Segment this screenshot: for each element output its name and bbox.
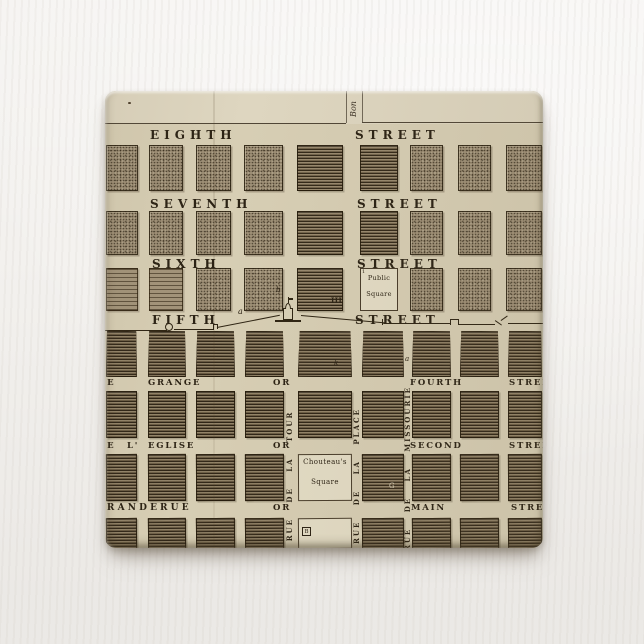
fortification-line	[459, 324, 495, 325]
city-block	[410, 268, 443, 311]
street-label-main-french2: RUE	[160, 503, 192, 513]
street-label-seventh: SEVENTH	[150, 197, 253, 211]
city-block	[458, 211, 491, 255]
public-square-line1: Public	[360, 274, 398, 282]
city-block	[196, 331, 235, 377]
city-block	[412, 454, 451, 501]
annotation-letter-a: a	[238, 307, 243, 316]
map-border-rule-left	[105, 123, 346, 124]
city-block	[508, 391, 542, 438]
fort-dome	[285, 303, 291, 309]
map-face: Bon EIGHTH STREET SEVENTH STREET SIXTH S…	[105, 91, 543, 548]
street-label-fourth-suffix: STREET	[509, 378, 543, 388]
chouteau-square-line1: Chouteau's	[298, 458, 352, 466]
fort-tower-icon	[275, 294, 301, 326]
street-label-fifth: FIFTH	[152, 313, 220, 327]
fortification-line	[217, 315, 280, 329]
fortification-zigzag	[501, 316, 508, 322]
city-block	[149, 145, 183, 191]
annotation-letter-g: G	[389, 482, 395, 490]
city-block	[297, 211, 343, 255]
fortification-line	[384, 323, 450, 324]
annotation-boxed-b: B	[302, 527, 311, 536]
city-block	[149, 268, 183, 311]
fortification-line	[508, 323, 543, 324]
street-label-eighth-suffix: STREET	[355, 128, 440, 142]
pin-button: Bon EIGHTH STREET SEVENTH STREET SIXTH S…	[105, 91, 543, 548]
redoubt-step-icon	[450, 319, 459, 325]
city-block	[244, 211, 283, 255]
city-block	[106, 211, 138, 255]
city-block	[106, 331, 137, 377]
city-block	[149, 211, 183, 255]
annotation-tick-marks: III	[331, 296, 342, 306]
street-label-main-french: GRANDE	[105, 503, 160, 513]
street-label-bon: Bon	[349, 91, 359, 129]
city-block	[106, 454, 137, 501]
bastion-circle-icon	[165, 323, 173, 331]
street-label-second-suffix: STREET	[509, 441, 543, 451]
city-block	[362, 454, 404, 501]
city-block	[458, 268, 491, 311]
city-block	[410, 211, 443, 255]
city-block	[362, 391, 404, 438]
city-block	[298, 331, 352, 377]
ink-speck	[128, 102, 131, 104]
city-block	[148, 331, 186, 377]
bon-street-line-left	[346, 91, 347, 123]
city-block	[360, 211, 398, 255]
city-block	[508, 454, 542, 501]
city-block	[297, 145, 343, 191]
street-label-second-french: EGLISE	[148, 441, 195, 451]
city-block	[362, 331, 404, 377]
city-block	[506, 268, 542, 311]
street-label-main: MAIN	[411, 503, 446, 513]
city-block	[458, 145, 491, 191]
street-label-main-suffix: STREET	[511, 503, 543, 513]
city-block	[460, 454, 499, 501]
fortification-line	[174, 329, 214, 330]
fort-base	[275, 320, 301, 322]
city-block	[196, 454, 235, 501]
city-block	[412, 391, 451, 438]
city-block	[244, 145, 283, 191]
product-photo-stage: Bon EIGHTH STREET SEVENTH STREET SIXTH S…	[0, 0, 644, 644]
city-block	[360, 145, 398, 191]
public-square-label: 1 Public Square	[360, 268, 398, 311]
city-block	[506, 211, 542, 255]
city-block	[196, 391, 235, 438]
public-square-line2: Square	[360, 290, 398, 298]
map-border-rule-right	[362, 122, 543, 123]
annotation-letter-a2: a	[405, 355, 409, 363]
street-label-fourth-fragment: DE	[105, 378, 115, 388]
city-block	[106, 145, 138, 191]
street-label-eighth: EIGHTH	[150, 128, 237, 142]
city-block	[460, 391, 499, 438]
street-label-second-fragment: DE	[105, 441, 115, 451]
city-block	[245, 391, 284, 438]
city-block	[148, 518, 186, 548]
annotation-letter-b: b	[276, 286, 280, 294]
city-block	[508, 518, 542, 548]
fort-tower	[283, 308, 293, 320]
street-label-rue-de-la-tour: RUE DE LA TOUR	[285, 401, 295, 548]
city-block	[106, 268, 138, 311]
city-block	[148, 454, 186, 501]
street-label-rue-de-la-place: RUE DE LA PLACE	[352, 401, 362, 548]
street-label-second-fragment2: L'	[127, 441, 139, 451]
city-block	[362, 518, 404, 548]
street-label-seventh-suffix: STREET	[357, 197, 442, 211]
city-block	[412, 518, 451, 548]
city-block	[410, 145, 443, 191]
city-block	[245, 331, 284, 377]
chouteau-square-line2: Square	[298, 478, 352, 486]
city-block	[506, 145, 542, 191]
city-block	[298, 391, 352, 438]
street-label-fourth-french: GRANGE	[148, 378, 201, 388]
city-block	[148, 391, 186, 438]
chouteau-square-label: Chouteau's Square	[298, 448, 352, 498]
street-label-fourth: FOURTH	[410, 378, 463, 388]
street-label-rue-de-la-missourie: RUE DE LA MISSOURIE	[403, 401, 413, 548]
street-label-sixth: SIXTH	[152, 257, 221, 271]
city-block	[460, 331, 499, 377]
city-block	[196, 518, 235, 548]
bon-street-line-right	[362, 91, 363, 122]
city-block	[106, 518, 137, 548]
street-label-second: SECOND	[410, 441, 463, 451]
street-label-fourth-or: OR	[273, 378, 291, 388]
city-block	[460, 518, 499, 548]
fortification-line	[105, 330, 167, 331]
annotation-letter-k: k	[334, 359, 338, 367]
map-top-margin	[105, 91, 543, 124]
city-block	[508, 331, 542, 377]
city-block	[106, 391, 137, 438]
city-block	[412, 331, 451, 377]
city-block	[245, 454, 284, 501]
city-block	[245, 518, 284, 548]
fort-flag	[289, 298, 293, 301]
